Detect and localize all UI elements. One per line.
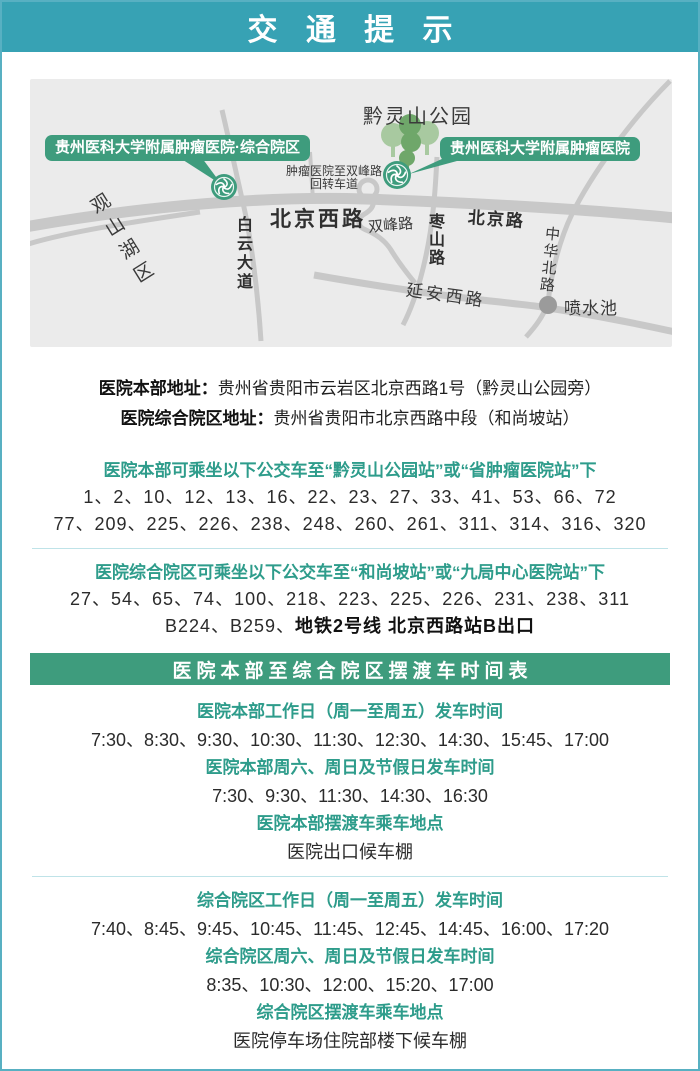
shuttle-main-stop-heading: 医院本部摆渡车乘车地点 (2, 810, 698, 838)
shuttle-branch-weekday-heading: 综合院区工作日（周一至周五）发车时间 (2, 887, 698, 915)
shuttle-main-stop-location: 医院出口候车棚 (2, 838, 698, 866)
bus-routes-main-line2: 77、209、225、226、238、248、260、261、311、314、3… (2, 511, 698, 538)
road-yanan-west (314, 275, 672, 332)
address-branch-value: 贵州省贵阳市北京西路中段（和尚坡站） (274, 409, 580, 428)
main-campus-label: 贵州医科大学附属肿瘤医院 (440, 137, 640, 161)
bus-section-branch-heading: 医院综合院区可乘坐以下公交车至“和尚坡站”或“九局中心医院站”下 (2, 559, 698, 586)
address-main-label: 医院本部地址： (99, 379, 218, 398)
bus-routes-branch-line1: 27、54、65、74、100、218、223、225、226、231、238、… (2, 586, 698, 613)
address-main-value: 贵州省贵阳市云岩区北京西路1号（黔灵山公园旁） (218, 379, 601, 398)
bus-routes-branch-line2: B224、B259、地铁2号线 北京西路站B出口 (2, 613, 698, 640)
road-shuangfeng (359, 197, 415, 283)
page-header: 交 通 提 示 (2, 2, 698, 52)
shuttle-banner: 医院本部至综合院区摆渡车时间表 (30, 653, 670, 685)
shuttle-branch-weekend-times: 8:35、10:30、12:00、15:20、17:00 (2, 971, 698, 999)
shuttle-branch-stop-location: 医院停车场住院部楼下候车棚 (2, 1027, 698, 1055)
location-map: 贵州医科大学附属肿瘤医院·综合院区 贵州医科大学附属肿瘤医院 黔灵山公园 观山湖… (30, 79, 672, 347)
bus-section-branch: 医院综合院区可乘坐以下公交车至“和尚坡站”或“九局中心医院站”下 27、54、6… (2, 559, 698, 640)
road-label-shuangfeng: 双峰路 (367, 212, 414, 237)
traffic-notice-page: 交 通 提 示 (0, 0, 700, 1071)
shuttle-main-weekday-heading: 医院本部工作日（周一至周五）发车时间 (2, 698, 698, 726)
fountain-dot (539, 296, 557, 314)
road-label-beijing: 北京路 (467, 203, 526, 232)
uturn-note-line2: 回转车道 (276, 178, 392, 191)
park-label: 黔灵山公园 (363, 100, 473, 129)
metro-info: 地铁2号线 北京西路站B出口 (295, 616, 535, 636)
shuttle-main-weekend-heading: 医院本部周六、周日及节假日发车时间 (2, 754, 698, 782)
address-branch-label: 医院综合院区地址： (121, 409, 274, 428)
uturn-note: 肿瘤医院至双峰路 回转车道 (276, 165, 392, 191)
address-main: 医院本部地址：贵州省贵阳市云岩区北京西路1号（黔灵山公园旁） (2, 374, 698, 404)
bus-section-main-heading: 医院本部可乘坐以下公交车至“黔灵山公园站”或“省肿瘤医院站”下 (2, 457, 698, 484)
road-label-zaoshan: 枣山路 (422, 213, 446, 267)
address-block: 医院本部地址：贵州省贵阳市云岩区北京西路1号（黔灵山公园旁） 医院综合院区地址：… (2, 374, 698, 434)
divider-1 (32, 548, 668, 549)
page-title: 交 通 提 示 (237, 5, 462, 49)
shuttle-branch-weekend-heading: 综合院区周六、周日及节假日发车时间 (2, 943, 698, 971)
road-label-beijing-west: 北京西路 (270, 203, 366, 233)
shuttle-branch-stop-heading: 综合院区摆渡车乘车地点 (2, 999, 698, 1027)
shuttle-main-weekday-times: 7:30、8:30、9:30、10:30、11:30、12:30、14:30、1… (2, 726, 698, 754)
address-branch: 医院综合院区地址：贵州省贵阳市北京西路中段（和尚坡站） (2, 404, 698, 434)
shuttle-main-weekend-times: 7:30、9:30、11:30、14:30、16:30 (2, 782, 698, 810)
hospital-marker-branch-icon (211, 174, 237, 200)
road-label-baiyun: 白云大道 (230, 216, 254, 292)
shuttle-branch-weekday-times: 7:40、8:45、9:45、10:45、11:45、12:45、14:45、1… (2, 915, 698, 943)
branch-campus-label: 贵州医科大学附属肿瘤医院·综合院区 (45, 135, 310, 161)
fountain-label: 喷水池 (564, 294, 618, 319)
bus-routes-main-line1: 1、2、10、12、13、16、22、23、27、33、41、53、66、72 (2, 484, 698, 511)
shuttle-branch-block: 综合院区工作日（周一至周五）发车时间 7:40、8:45、9:45、10:45、… (2, 887, 698, 1055)
bus-routes-branch-line2-prefix: B224、B259、 (165, 616, 295, 636)
bus-section-main: 医院本部可乘坐以下公交车至“黔灵山公园站”或“省肿瘤医院站”下 1、2、10、1… (2, 457, 698, 538)
shuttle-main-block: 医院本部工作日（周一至周五）发车时间 7:30、8:30、9:30、10:30、… (2, 698, 698, 866)
divider-2 (32, 876, 668, 877)
